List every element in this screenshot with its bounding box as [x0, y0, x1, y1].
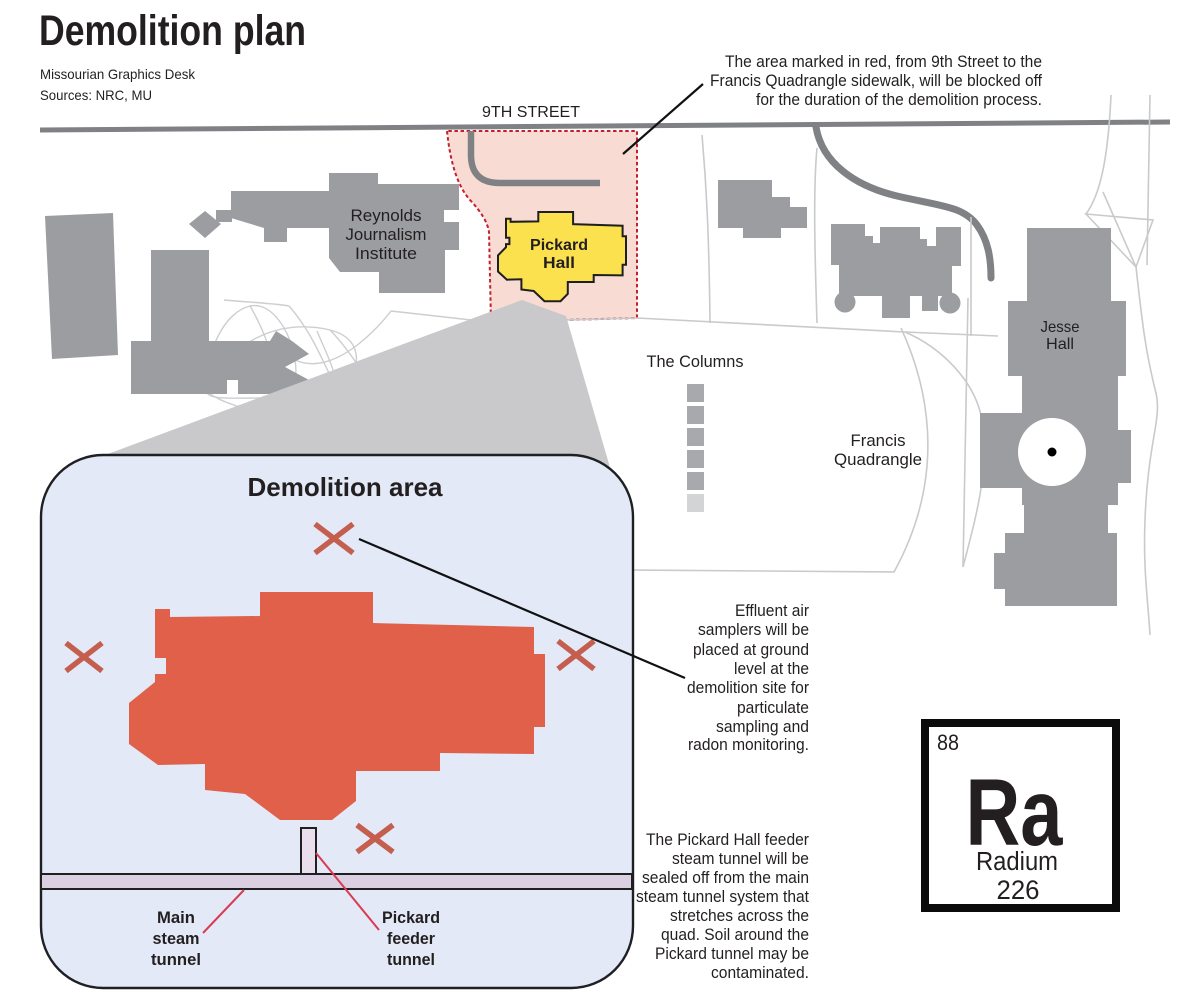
- svg-text:samplers will be: samplers will be: [698, 621, 809, 639]
- svg-text:tunnel: tunnel: [151, 951, 201, 969]
- svg-text:Pickard tunnel may be: Pickard tunnel may be: [655, 945, 809, 963]
- svg-text:steam tunnel system that: steam tunnel system that: [636, 888, 809, 906]
- svg-text:Pickard: Pickard: [530, 237, 588, 254]
- svg-text:for the duration of the demoli: for the duration of the demolition proce…: [756, 91, 1042, 109]
- svg-text:feeder: feeder: [387, 930, 436, 948]
- svg-text:The area marked in red, from 9: The area marked in red, from 9th Street …: [725, 53, 1042, 71]
- svg-text:sealed off from the main: sealed off from the main: [642, 869, 809, 887]
- svg-text:Francis: Francis: [851, 432, 906, 450]
- svg-text:Jesse: Jesse: [1041, 319, 1080, 336]
- svg-text:9TH STREET: 9TH STREET: [482, 104, 581, 121]
- svg-text:radon monitoring.: radon monitoring.: [688, 736, 809, 754]
- svg-text:Pickard: Pickard: [382, 909, 440, 927]
- svg-text:quad. Soil around the: quad. Soil around the: [661, 926, 809, 944]
- svg-text:Radium: Radium: [976, 848, 1058, 876]
- svg-text:demolition site for: demolition site for: [687, 679, 809, 697]
- svg-text:Reynolds: Reynolds: [351, 207, 422, 225]
- svg-text:The Columns: The Columns: [647, 353, 744, 371]
- svg-text:Demolition area: Demolition area: [248, 472, 444, 502]
- svg-text:level at the: level at the: [734, 660, 809, 678]
- svg-text:sampling and: sampling and: [716, 718, 809, 736]
- svg-text:Sources: NRC, MU: Sources: NRC, MU: [40, 87, 152, 103]
- svg-text:Francis Quadrangle sidewalk, w: Francis Quadrangle sidewalk, will be blo…: [710, 72, 1042, 90]
- svg-text:steam: steam: [153, 930, 200, 948]
- svg-text:Hall: Hall: [1046, 336, 1074, 353]
- svg-text:tunnel: tunnel: [387, 951, 435, 969]
- svg-text:Institute: Institute: [355, 245, 417, 263]
- svg-text:Journalism: Journalism: [346, 226, 427, 244]
- svg-text:steam tunnel will be: steam tunnel will be: [672, 850, 809, 868]
- svg-text:Hall: Hall: [543, 255, 575, 272]
- svg-text:particulate: particulate: [737, 699, 809, 717]
- svg-text:226: 226: [997, 875, 1040, 905]
- svg-text:stretches across the: stretches across the: [670, 907, 809, 925]
- svg-text:Missourian Graphics Desk: Missourian Graphics Desk: [40, 66, 196, 82]
- svg-text:Effluent air: Effluent air: [735, 602, 809, 620]
- svg-text:Demolition plan: Demolition plan: [39, 7, 306, 55]
- svg-text:placed at ground: placed at ground: [693, 641, 809, 659]
- svg-text:Quadrangle: Quadrangle: [834, 451, 922, 469]
- svg-text:The Pickard Hall feeder: The Pickard Hall feeder: [646, 831, 809, 849]
- svg-text:Main: Main: [157, 909, 195, 927]
- svg-text:88: 88: [937, 730, 959, 755]
- svg-text:contaminated.: contaminated.: [711, 964, 809, 982]
